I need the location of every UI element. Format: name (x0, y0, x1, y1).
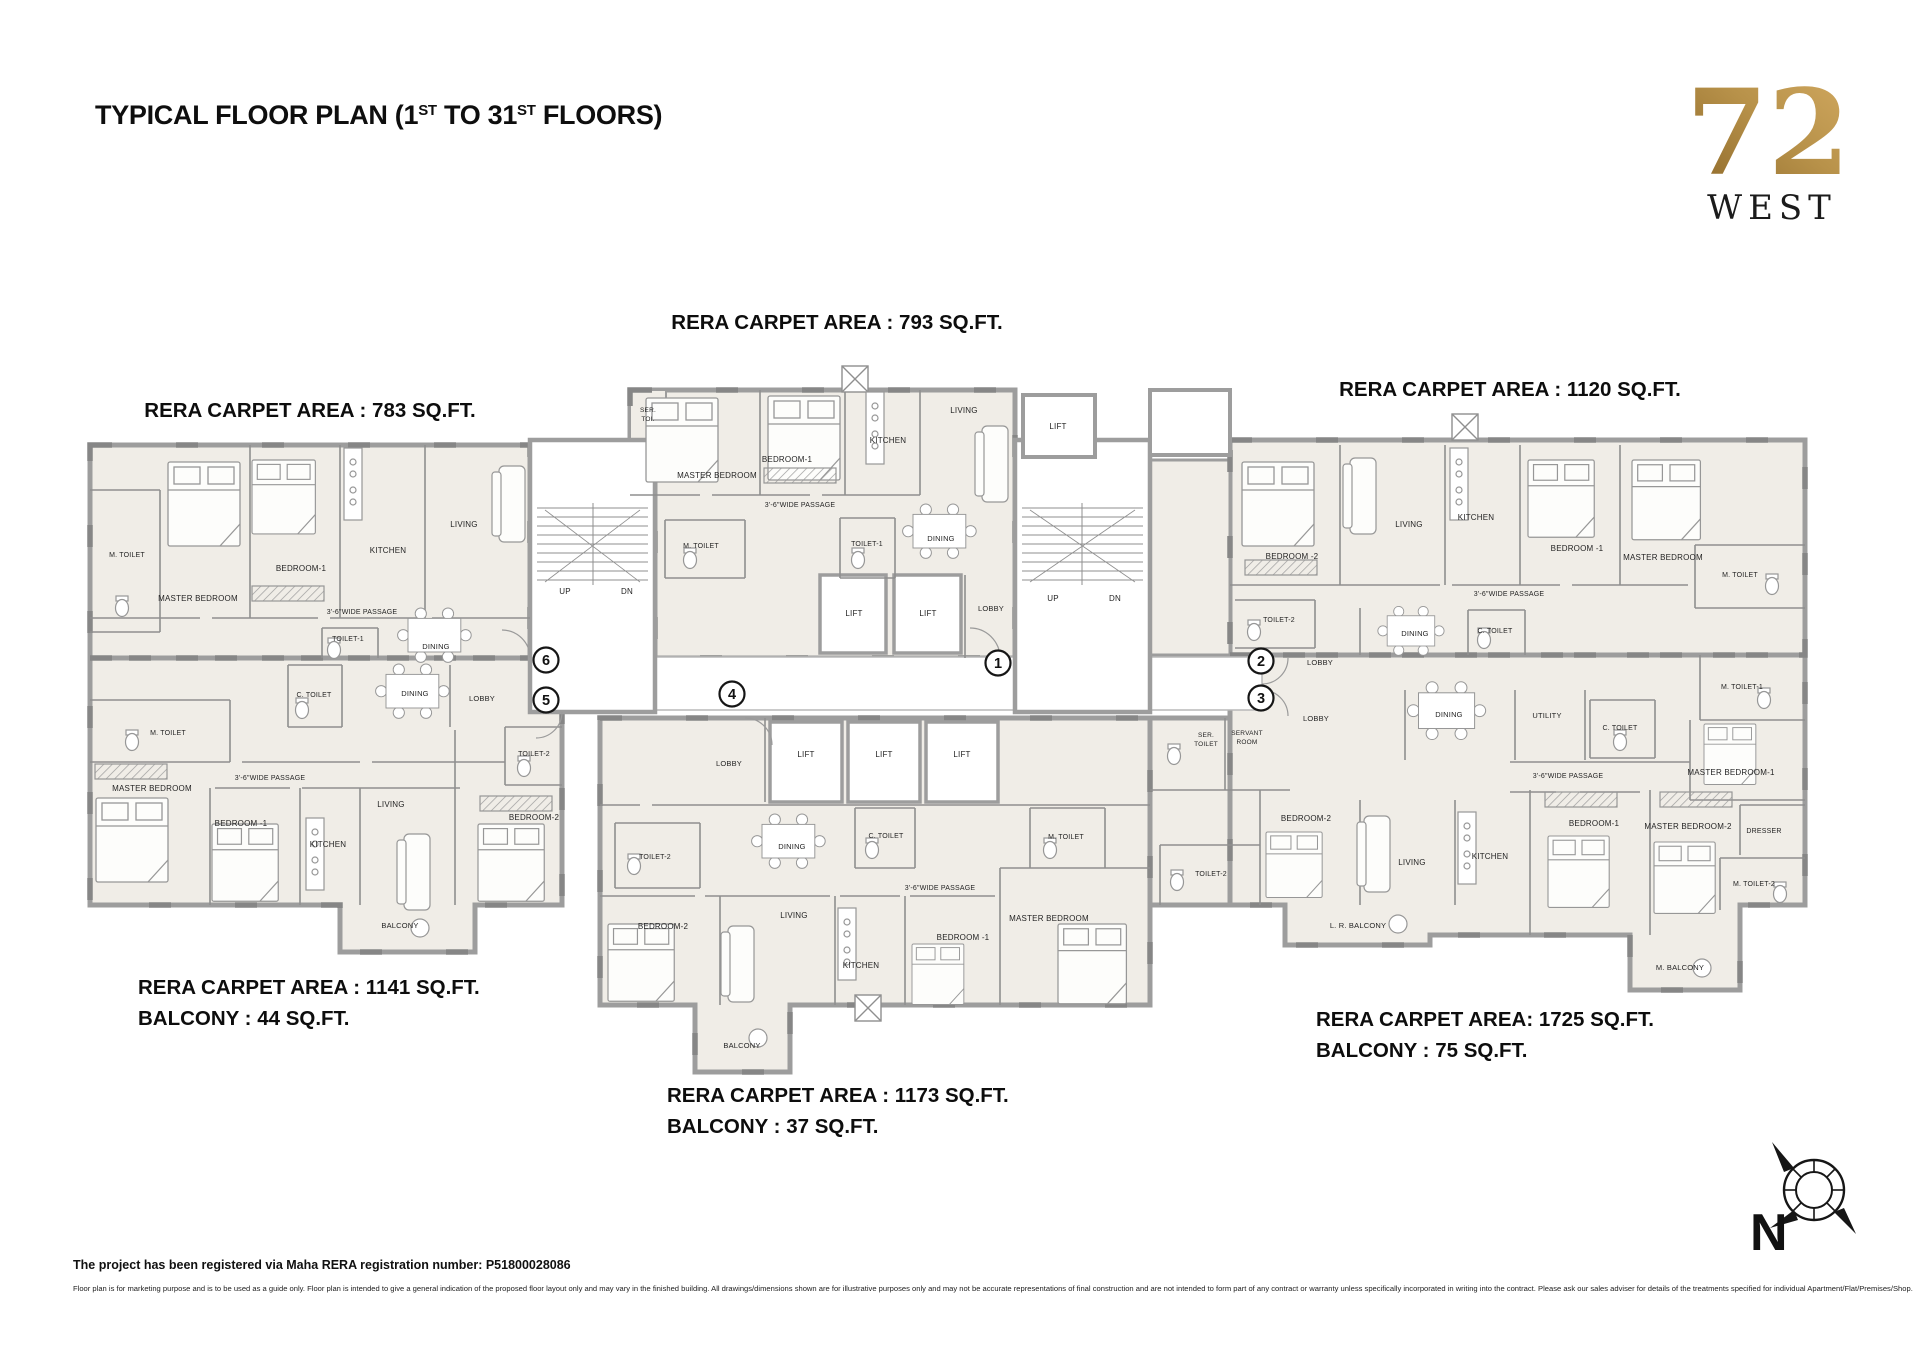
area-label-unit-1120: RERA CARPET AREA : 1120 SQ.FT. (1339, 378, 1681, 401)
room-label: BEDROOM -2 (1266, 552, 1319, 561)
floor-plan: M. TOILETMASTER BEDROOMBEDROOM-1KITCHENL… (0, 0, 1920, 1358)
disclaimer-line: Floor plan is for marketing purpose and … (73, 1284, 1873, 1293)
room-label: 3'-6"WIDE PASSAGE (1533, 773, 1604, 780)
room-label: 3'-6"WIDE PASSAGE (905, 885, 976, 892)
room-label: LIFT (919, 609, 936, 618)
room-label: KITCHEN (310, 840, 347, 849)
rera-registration-line: The project has been registered via Maha… (73, 1258, 571, 1272)
room-label: ROOM (1236, 739, 1257, 746)
room-label: UP (559, 587, 571, 596)
room-label: LOBBY (978, 604, 1004, 613)
room-label: C. TOILET (297, 692, 333, 699)
room-label: DRESSER (1746, 828, 1781, 835)
svg-text:3: 3 (1257, 691, 1265, 707)
room-label: M. TOILET (1722, 572, 1758, 579)
room-label: BALCONY (723, 1041, 760, 1050)
room-label: BEDROOM -1 (215, 819, 268, 828)
unit-entrance-number-1: 1 (986, 651, 1011, 676)
room-label: DN (1109, 594, 1121, 603)
room-label: LIVING (377, 800, 404, 809)
room-label: TOILET-1 (851, 541, 883, 548)
room-label: TOILET-2 (1195, 871, 1227, 878)
room-label: DN (621, 587, 633, 596)
floor-plan-page: TYPICAL FLOOR PLAN (1ST TO 31ST FLOORS) … (0, 0, 1920, 1358)
room-label: MASTER BEDROOM-2 (1644, 822, 1732, 831)
room-label: LIFT (797, 750, 814, 759)
room-label: LOBBY (1307, 658, 1333, 667)
room-label: UTILITY (1532, 711, 1561, 720)
room-label: M. TOILET (683, 543, 719, 550)
room-label: TOI. (641, 416, 654, 423)
room-label: LIVING (950, 406, 977, 415)
room-label: M. BALCONY (1656, 963, 1704, 972)
room-label: DINING (1435, 710, 1462, 719)
svg-text:4: 4 (728, 687, 736, 703)
room-label: DINING (401, 689, 428, 698)
compass-north-label: N (1750, 1204, 1788, 1262)
compass: N (1722, 1112, 1882, 1282)
area-label-unit-1173: RERA CARPET AREA : 1173 SQ.FT.BALCONY : … (667, 1084, 1009, 1138)
svg-text:2: 2 (1257, 654, 1265, 670)
room-label: L. R. BALCONY (1330, 921, 1386, 930)
room-label: DINING (927, 534, 954, 543)
room-label: TOILET-2 (518, 751, 550, 758)
room-label: TOILET (1194, 741, 1218, 748)
room-label: MASTER BEDROOM (1623, 553, 1703, 562)
room-label: LIFT (845, 609, 862, 618)
room-label: MASTER BEDROOM-1 (1687, 768, 1775, 777)
room-label: SER. (1198, 732, 1214, 739)
room-label: 3'-6"WIDE PASSAGE (235, 775, 306, 782)
room-label: LOBBY (716, 759, 742, 768)
room-label: C. TOILET (1478, 628, 1514, 635)
room-label: TOILET-2 (639, 854, 671, 861)
room-label: 3'-6"WIDE PASSAGE (765, 502, 836, 509)
room-label: BALCONY (381, 921, 418, 930)
room-label: MASTER BEDROOM (158, 594, 238, 603)
room-label: LOBBY (469, 694, 495, 703)
room-label: M. TOILET-1 (1721, 684, 1763, 691)
room-label: TOILET-1 (332, 636, 364, 643)
room-label: BEDROOM-1 (276, 564, 327, 573)
unit-entrance-number-6: 6 (534, 648, 559, 673)
room-label: M. TOILET (150, 730, 186, 737)
room-label: KITCHEN (843, 961, 880, 970)
room-label: UP (1047, 594, 1059, 603)
svg-text:1: 1 (994, 656, 1002, 672)
room-label: MASTER BEDROOM (112, 784, 192, 793)
area-label-unit-1141: RERA CARPET AREA : 1141 SQ.FT.BALCONY : … (138, 976, 480, 1030)
room-label: M. TOILET-2 (1733, 881, 1775, 888)
room-label: LIFT (1049, 422, 1066, 431)
room-label: KITCHEN (370, 546, 407, 555)
area-label-unit-1725: RERA CARPET AREA: 1725 SQ.FT.BALCONY : 7… (1316, 1008, 1654, 1062)
room-label: KITCHEN (1472, 852, 1509, 861)
room-label: LIFT (875, 750, 892, 759)
room-label: C. TOILET (869, 833, 905, 840)
room-label: MASTER BEDROOM (1009, 914, 1089, 923)
svg-text:6: 6 (542, 653, 550, 669)
unit-entrance-number-4: 4 (720, 682, 745, 707)
room-label: DINING (422, 642, 449, 651)
room-label: LIVING (780, 911, 807, 920)
room-label: KITCHEN (1458, 513, 1495, 522)
room-label: KITCHEN (870, 436, 907, 445)
room-label: LIVING (450, 520, 477, 529)
area-label-unit-783: RERA CARPET AREA : 783 SQ.FT. (144, 399, 475, 422)
room-label: BEDROOM-2 (638, 922, 689, 931)
room-label: LIVING (1398, 858, 1425, 867)
room-label: TOILET-2 (1263, 617, 1295, 624)
room-label: SER. (640, 407, 656, 414)
unit-entrance-number-2: 2 (1249, 649, 1274, 674)
room-label: LIVING (1395, 520, 1422, 529)
unit-entrance-number-5: 5 (534, 688, 559, 713)
room-label: BEDROOM-2 (509, 813, 560, 822)
room-label: DINING (1401, 629, 1428, 638)
room-label: LIFT (953, 750, 970, 759)
room-label: BEDROOM-1 (1569, 819, 1620, 828)
room-label: BEDROOM -1 (1551, 544, 1604, 553)
svg-text:5: 5 (542, 693, 550, 709)
room-label: BEDROOM-1 (762, 455, 813, 464)
room-label: C. TOILET (1603, 725, 1639, 732)
room-label: BEDROOM-2 (1281, 814, 1332, 823)
room-label: M. TOILET (1048, 834, 1084, 841)
room-label: SERVANT (1231, 730, 1263, 737)
room-label: LOBBY (1303, 714, 1329, 723)
area-label-unit-793: RERA CARPET AREA : 793 SQ.FT. (671, 311, 1002, 334)
room-label: M. TOILET (109, 552, 145, 559)
room-label: BEDROOM -1 (937, 933, 990, 942)
room-label: DINING (778, 842, 805, 851)
room-label: 3'-6"WIDE PASSAGE (327, 609, 398, 616)
unit-entrance-number-3: 3 (1249, 686, 1274, 711)
room-label: 3'-6"WIDE PASSAGE (1474, 591, 1545, 598)
room-label: MASTER BEDROOM (677, 471, 757, 480)
